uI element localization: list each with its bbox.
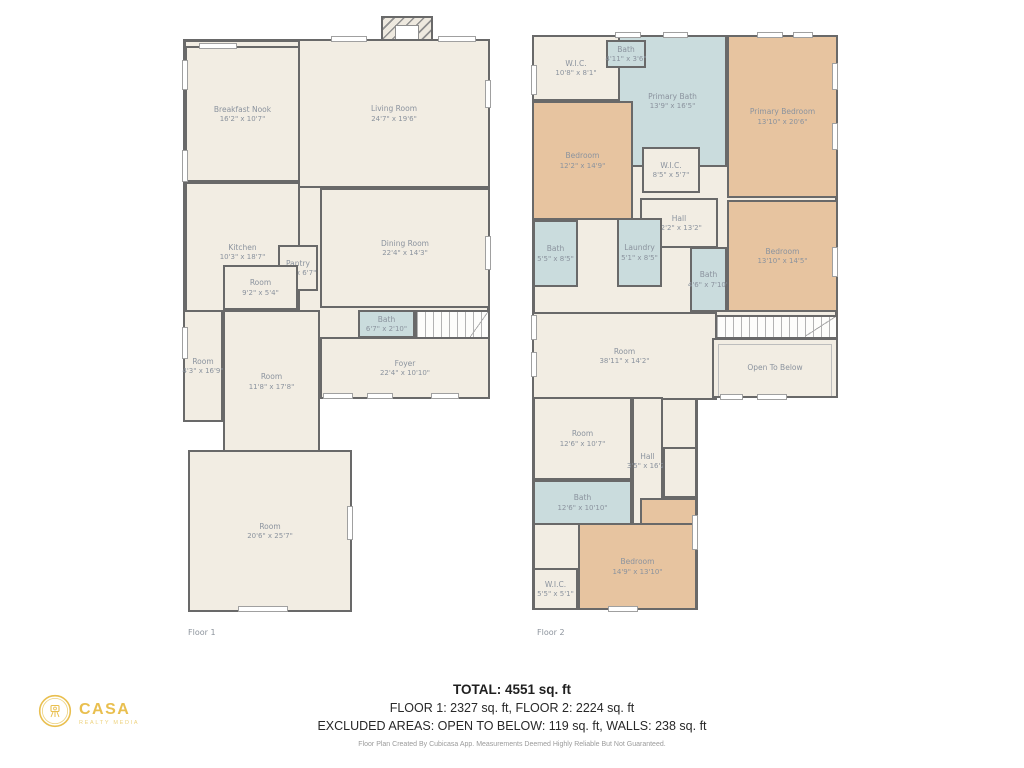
room-label: Bedroom: [766, 246, 800, 257]
room-dimensions: 6'7" x 2'10": [366, 325, 407, 334]
window-mark: [431, 393, 459, 399]
floor2-plan: Floor 2 W.I.C.10'8" x 8'1"Primary Bath13…: [532, 30, 838, 612]
window-mark: [238, 606, 288, 612]
floor2-caption: Floor 2: [537, 628, 565, 637]
bath-floor1: Bath6'7" x 2'10": [358, 310, 415, 338]
room-dimensions: 10'8" x 8'1": [555, 69, 596, 78]
window-mark: [608, 606, 638, 612]
room-label: W.I.C.: [660, 160, 681, 171]
window-mark: [757, 32, 783, 38]
window-mark: [832, 247, 838, 277]
bath-top: Bath4'11" x 3'6": [606, 40, 646, 68]
laundry: Laundry5'1" x 8'5": [617, 218, 662, 287]
room-label: Bath: [574, 492, 591, 503]
room-label: Breakfast Nook: [214, 104, 271, 115]
window-mark: [531, 315, 537, 340]
room-label: Room: [259, 521, 280, 532]
room-large: Room20'6" x 25'7": [188, 450, 352, 612]
camera-tripod-badge-icon: [38, 694, 72, 733]
open-to-below: Open To Below: [712, 338, 838, 398]
window-mark: [485, 80, 491, 108]
room-label: Bath: [378, 314, 395, 325]
window-mark: [485, 236, 491, 270]
primary-bedroom: Primary Bedroom13'10" x 20'6": [727, 35, 838, 198]
bedroom-bottom: Bedroom14'9" x 13'10": [578, 523, 697, 610]
room-dimensions: 16'2" x 10'7": [220, 115, 266, 124]
window-mark: [331, 36, 367, 42]
room-label: Hall: [672, 213, 686, 224]
window-mark: [615, 32, 641, 38]
room-dimensions: 12'2" x 13'2": [656, 224, 702, 233]
room-label: Bath: [617, 44, 634, 55]
room-dimensions: 22'4" x 14'3": [382, 249, 428, 258]
room-label: Open To Below: [747, 362, 802, 373]
room-dimensions: 4'3" x 16'9": [182, 367, 223, 376]
floor-plan-page: { "palette": { "wall": "#696969", "floor…: [0, 0, 1024, 768]
window-mark: [720, 394, 743, 400]
room-label: Room: [261, 371, 282, 382]
room-small: Room9'2" x 5'4": [223, 265, 298, 310]
room-dimensions: 13'10" x 20'6": [757, 118, 807, 127]
bedroom-left: Bedroom12'2" x 14'9": [532, 101, 633, 220]
window-mark: [663, 32, 688, 38]
window-mark: [367, 393, 393, 399]
staircase-floor1: [415, 310, 490, 340]
room-label: Living Room: [371, 103, 417, 114]
room-dimensions: 8'5" x 5'7": [653, 171, 690, 180]
room-dimensions: 12'2" x 14'9": [560, 162, 606, 171]
room-mid: Room11'8" x 17'8": [223, 310, 320, 453]
window-mark: [757, 394, 787, 400]
bedroom-right: Bedroom13'10" x 14'5": [727, 200, 838, 312]
room-label: Bedroom: [621, 556, 655, 567]
room-label: W.I.C.: [565, 58, 586, 69]
dining-room: Dining Room22'4" x 14'3": [320, 188, 490, 308]
room-dimensions: 24'7" x 19'6": [371, 115, 417, 124]
room-label: Laundry: [624, 242, 655, 253]
window-mark: [692, 515, 698, 550]
window-mark: [832, 63, 838, 90]
room-dimensions: 14'9" x 13'10": [612, 568, 662, 577]
disclaimer-text: Floor Plan Created By Cubicasa App. Meas…: [0, 741, 1024, 748]
room-dimensions: 11'8" x 17'8": [249, 383, 295, 392]
room-label: Kitchen: [228, 242, 256, 253]
window-mark: [182, 327, 188, 359]
window-mark: [182, 60, 188, 90]
casa-realty-media-logo: CASA REALTY MEDIA: [38, 694, 139, 733]
room-dimensions: 4'6" x 7'10": [688, 281, 729, 290]
excluded-areas-text: EXCLUDED AREAS: OPEN TO BELOW: 119 sq. f…: [0, 717, 1024, 735]
logo-name: CASA: [79, 702, 139, 718]
window-mark: [832, 123, 838, 150]
window-mark: [182, 150, 188, 182]
room-dimensions: 5'1" x 8'5": [621, 254, 658, 263]
room-dimensions: 10'3" x 18'7": [220, 253, 266, 262]
window-mark: [199, 43, 237, 49]
room-label: Primary Bath: [648, 91, 697, 102]
total-area-text: TOTAL: 4551 sq. ft: [0, 681, 1024, 699]
window-mark: [323, 393, 353, 399]
room-label: Bath: [700, 269, 717, 280]
room-dimensions: 9'2" x 5'4": [242, 289, 279, 298]
corner-nook: [663, 447, 697, 498]
window-mark: [531, 352, 537, 377]
room-bottom: Room12'6" x 10'7": [533, 397, 632, 480]
room-dimensions: 12'6" x 10'10": [557, 504, 607, 513]
room-label: Room: [614, 346, 635, 357]
bath-mid: Bath4'6" x 7'10": [690, 247, 727, 312]
room-dimensions: 38'11" x 14'2": [599, 357, 649, 366]
bath-left: Bath5'5" x 8'5": [533, 220, 578, 287]
room-38: Room38'11" x 14'2": [532, 312, 717, 400]
wic-bottom: W.I.C.5'5" x 5'1": [533, 568, 578, 610]
floor1-caption: Floor 1: [188, 628, 216, 637]
room-label: Dining Room: [381, 238, 429, 249]
room-dimensions: 5'5" x 5'1": [537, 590, 574, 599]
window-mark: [531, 65, 537, 95]
window-mark: [793, 32, 813, 38]
room-label: Foyer: [395, 358, 416, 369]
room-label: Hall: [640, 451, 654, 462]
room-label: Room: [572, 428, 593, 439]
wic-mid: W.I.C.8'5" x 5'7": [642, 147, 700, 193]
area-summary: TOTAL: 4551 sq. ft FLOOR 1: 2327 sq. ft,…: [0, 681, 1024, 748]
window-mark: [347, 506, 353, 540]
foyer: Foyer22'4" x 10'10": [320, 337, 490, 399]
room-label: W.I.C.: [545, 579, 566, 590]
room-label: Primary Bedroom: [750, 106, 815, 117]
room-dimensions: 4'11" x 3'6": [605, 55, 646, 64]
floor1-plan: Floor 1 Breakfast Nook16'2" x 10'7"Kitch…: [183, 14, 493, 612]
window-mark: [438, 36, 476, 42]
breakfast-nook: Breakfast Nook16'2" x 10'7": [185, 46, 300, 182]
room-narrow: Room4'3" x 16'9": [183, 310, 223, 422]
room-dimensions: 13'10" x 14'5": [757, 257, 807, 266]
logo-tagline: REALTY MEDIA: [79, 720, 139, 726]
floor-areas-text: FLOOR 1: 2327 sq. ft, FLOOR 2: 2224 sq. …: [0, 699, 1024, 717]
living-room: Living Room24'7" x 19'6": [298, 39, 490, 188]
room-dimensions: 13'9" x 16'5": [650, 102, 696, 111]
room-label: Bath: [547, 243, 564, 254]
room-dimensions: 20'6" x 25'7": [247, 532, 293, 541]
room-dimensions: 22'4" x 10'10": [380, 369, 430, 378]
room-label: Bedroom: [566, 150, 600, 161]
bath-bottom: Bath12'6" x 10'10": [533, 480, 632, 525]
room-dimensions: 12'6" x 10'7": [560, 440, 606, 449]
room-label: Room: [192, 356, 213, 367]
room-label: Room: [250, 277, 271, 288]
staircase-floor2: [715, 315, 838, 339]
room-dimensions: 3'5" x 16'2": [627, 462, 668, 471]
room-dimensions: 5'5" x 8'5": [537, 255, 574, 264]
